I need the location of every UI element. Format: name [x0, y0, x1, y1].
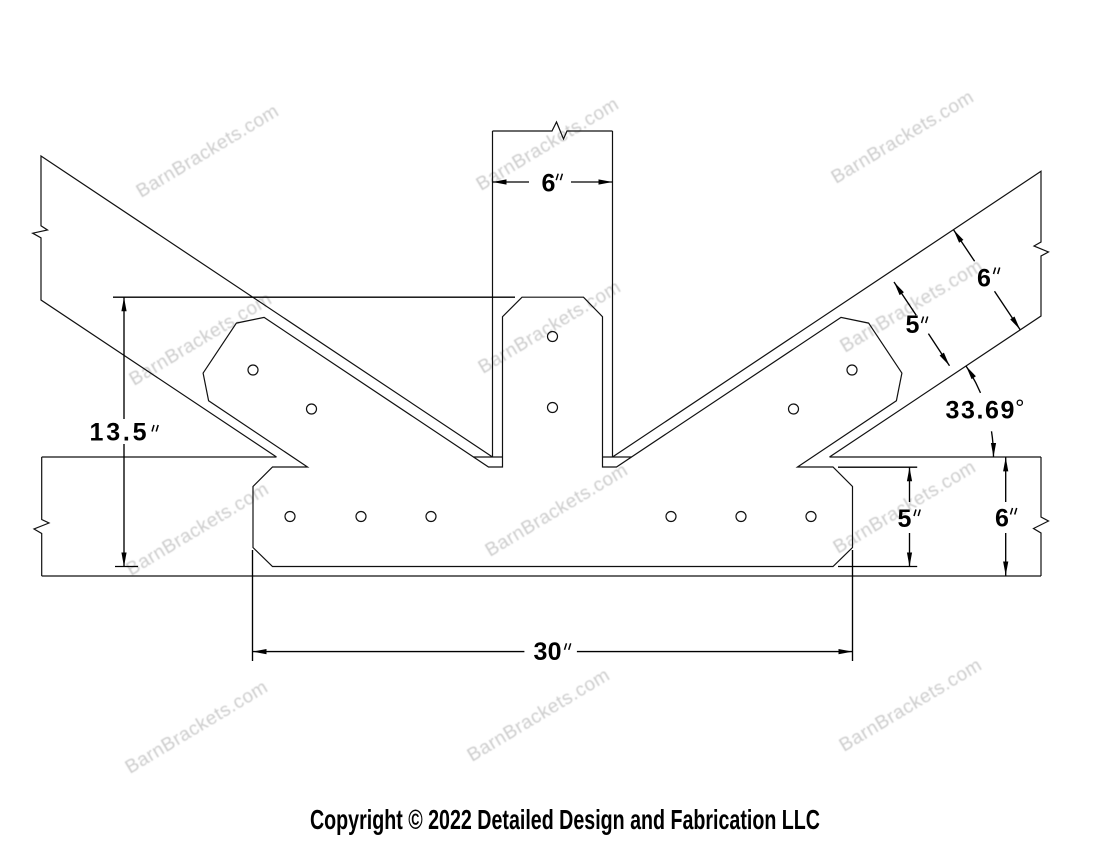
- svg-text:30: 30: [534, 638, 562, 666]
- svg-text:6: 6: [995, 505, 1010, 533]
- svg-text:5: 5: [906, 311, 921, 339]
- svg-text:6: 6: [542, 170, 557, 198]
- svg-text:6: 6: [977, 265, 992, 293]
- svg-text:33.69: 33.69: [946, 397, 1017, 425]
- svg-text:Copyright © 2022 Detailed Desi: Copyright © 2022 Detailed Design and Fab…: [310, 804, 820, 835]
- svg-text:13.5: 13.5: [90, 419, 150, 447]
- svg-text:5: 5: [898, 505, 913, 533]
